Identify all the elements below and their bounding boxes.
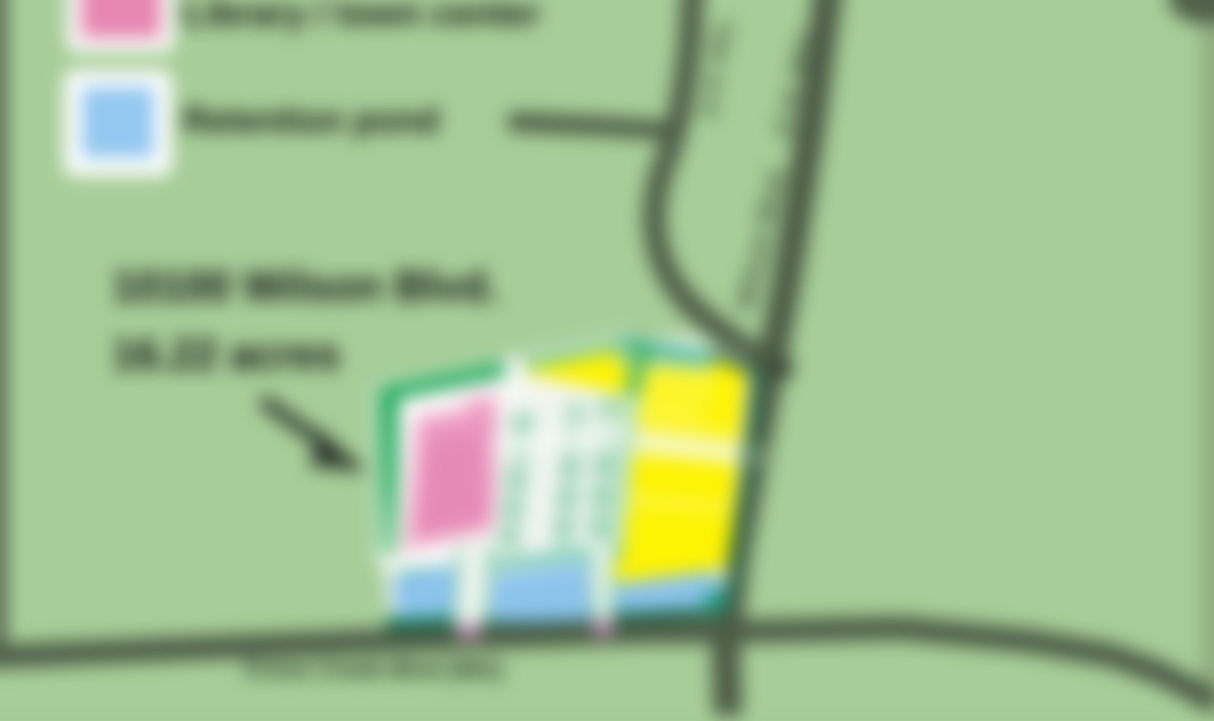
svg-text:Retention pond: Retention pond	[183, 101, 439, 140]
svg-text:16.22 acres: 16.22 acres	[112, 330, 340, 379]
svg-text:Cross Creek Blvd (581): Cross Creek Blvd (581)	[244, 656, 503, 683]
svg-text:10100 Wilson Blvd.: 10100 Wilson Blvd.	[112, 262, 499, 311]
svg-text:Library / town center: Library / town center	[183, 0, 540, 33]
